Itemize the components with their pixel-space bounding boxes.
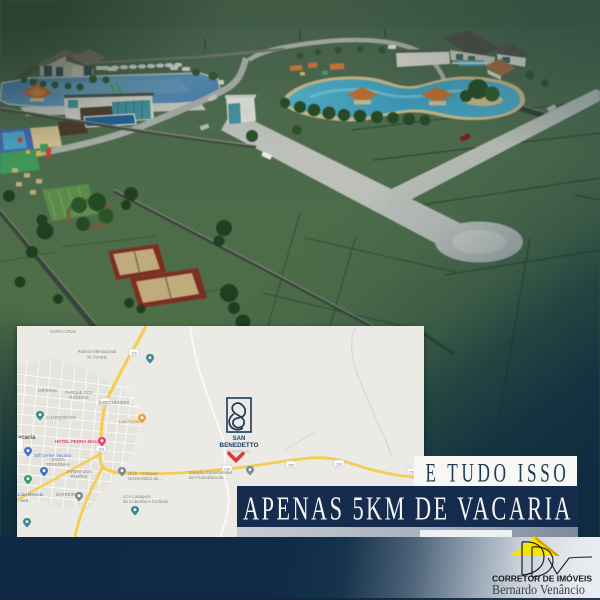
- svg-text:Las Rozas: Las Rozas: [119, 419, 141, 424]
- svg-text:HOTEL PEDRA MOURA: HOTEL PEDRA MOURA: [55, 439, 105, 444]
- svg-text:de Fruticultura de...: de Fruticultura de...: [189, 475, 227, 480]
- svg-text:CHARQUEADO: CHARQUEADO: [46, 415, 77, 420]
- svg-text:APENAS 5KM DE VACARIA: APENAS 5KM DE VACARIA: [243, 489, 573, 527]
- svg-text:PAMPAS: PAMPAS: [71, 474, 88, 479]
- svg-text:SANTA CRUZ: SANTA CRUZ: [50, 329, 77, 334]
- svg-text:239: 239: [288, 463, 294, 467]
- svg-text:BENEDETTO: BENEDETTO: [220, 442, 259, 449]
- svg-text:239: 239: [336, 462, 342, 466]
- svg-text:116: 116: [131, 351, 137, 355]
- svg-text:SACO NENDES: SACO NENDES: [99, 400, 130, 405]
- svg-text:E TUDO ISSO: E TUDO ISSO: [426, 460, 570, 488]
- svg-text:de Vacaria: de Vacaria: [87, 355, 107, 360]
- svg-text:...eira: ...eira: [17, 498, 29, 503]
- svg-text:TEREZINHA: TEREZINHA: [46, 462, 70, 467]
- svg-text:Bernardo Venâncio: Bernardo Venâncio: [492, 582, 585, 597]
- svg-text:Mili Center Vacaria: Mili Center Vacaria: [34, 453, 71, 458]
- svg-text:de Cobertas e Cortinas: de Cobertas e Cortinas: [123, 499, 169, 504]
- svg-text:Universitário de...: Universitário de...: [128, 476, 162, 481]
- svg-text:Rodeio Internacional: Rodeio Internacional: [78, 349, 116, 354]
- svg-text:116: 116: [98, 447, 104, 451]
- svg-text:IMPERIAL: IMPERIAL: [38, 388, 58, 393]
- svg-text:RODEIOS: RODEIOS: [69, 395, 89, 400]
- svg-text:João Macedo: João Macedo: [17, 492, 44, 497]
